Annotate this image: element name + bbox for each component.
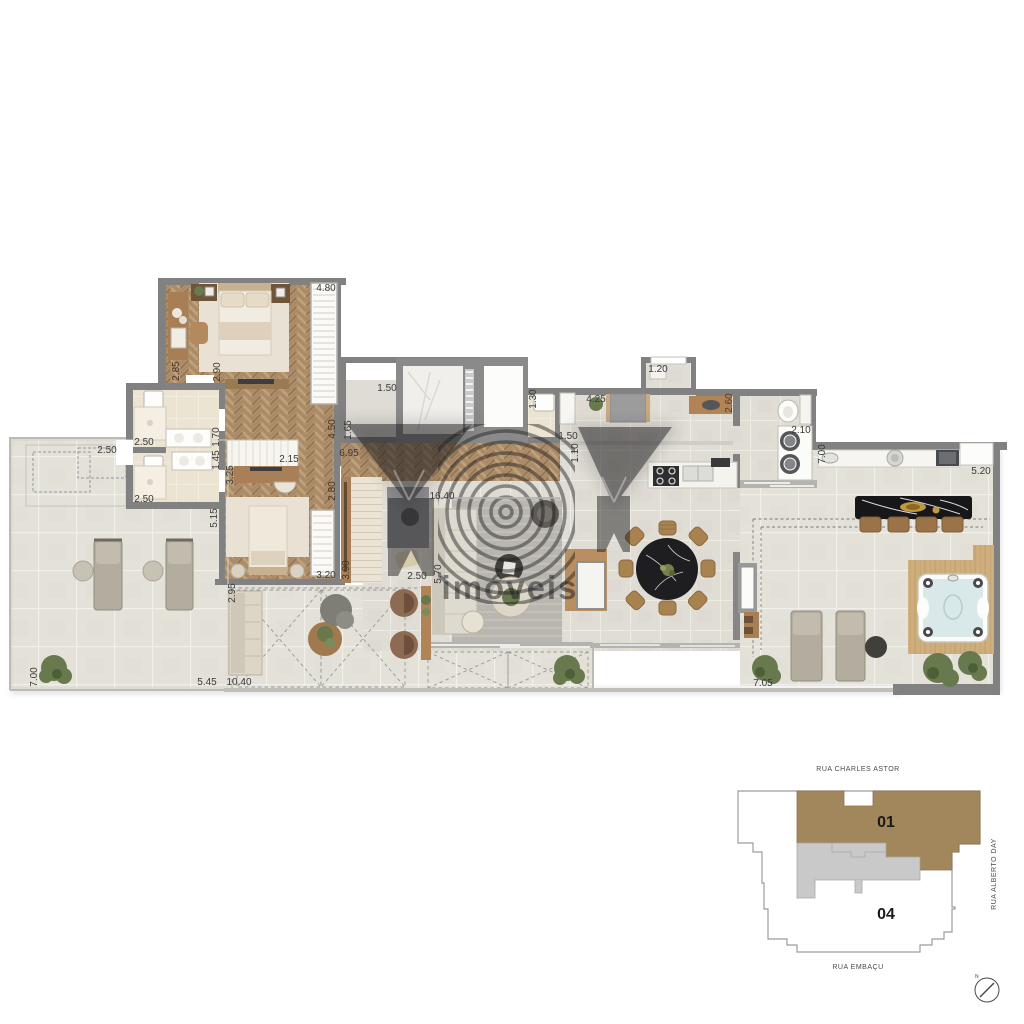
- svg-text:2.10: 2.10: [791, 425, 811, 436]
- svg-text:5.20: 5.20: [971, 466, 991, 477]
- svg-text:imóveis: imóveis: [442, 569, 579, 606]
- svg-text:3.25: 3.25: [225, 465, 236, 485]
- svg-text:1.20: 1.20: [648, 364, 668, 375]
- svg-text:10.40: 10.40: [226, 677, 251, 688]
- svg-text:4.50: 4.50: [327, 419, 338, 439]
- svg-text:2.50: 2.50: [97, 445, 117, 456]
- svg-text:6.95: 6.95: [339, 448, 359, 459]
- svg-text:7.05: 7.05: [753, 678, 773, 689]
- svg-text:2.50: 2.50: [134, 437, 154, 448]
- svg-text:RUA CHARLES ASTOR: RUA CHARLES ASTOR: [816, 766, 899, 773]
- svg-text:1.30: 1.30: [528, 389, 539, 409]
- svg-text:1.10: 1.10: [570, 443, 581, 463]
- svg-text:2.60: 2.60: [724, 393, 735, 413]
- svg-text:5.70: 5.70: [433, 564, 444, 584]
- svg-text:2.50: 2.50: [407, 571, 427, 582]
- svg-text:04: 04: [877, 906, 895, 923]
- svg-text:1.50: 1.50: [558, 431, 578, 442]
- svg-text:2.90: 2.90: [212, 362, 223, 382]
- svg-text:4.25: 4.25: [586, 394, 606, 405]
- svg-text:2.95: 2.95: [227, 583, 238, 603]
- svg-text:7.00: 7.00: [817, 444, 828, 464]
- svg-text:2.85: 2.85: [171, 361, 182, 381]
- svg-text:1.45: 1.45: [211, 450, 222, 470]
- svg-text:3.20: 3.20: [316, 570, 336, 581]
- svg-text:5.45: 5.45: [197, 677, 217, 688]
- svg-text:RUA EMBAÇU: RUA EMBAÇU: [832, 964, 883, 971]
- svg-text:2.80: 2.80: [327, 481, 338, 501]
- svg-text:RUA ALBERTO DAY: RUA ALBERTO DAY: [991, 838, 998, 910]
- svg-text:1.50: 1.50: [377, 383, 397, 394]
- svg-text:7.00: 7.00: [29, 667, 40, 687]
- svg-text:4.80: 4.80: [316, 283, 336, 294]
- svg-text:3.90: 3.90: [341, 560, 352, 580]
- svg-text:2.15: 2.15: [279, 454, 299, 465]
- svg-text:1.65: 1.65: [343, 420, 354, 440]
- svg-text:1.70: 1.70: [211, 427, 222, 447]
- svg-text:01: 01: [877, 814, 895, 831]
- svg-text:5.15: 5.15: [209, 508, 220, 528]
- svg-text:2.50: 2.50: [134, 494, 154, 505]
- svg-text:N: N: [975, 974, 979, 980]
- svg-text:16.40: 16.40: [429, 491, 454, 502]
